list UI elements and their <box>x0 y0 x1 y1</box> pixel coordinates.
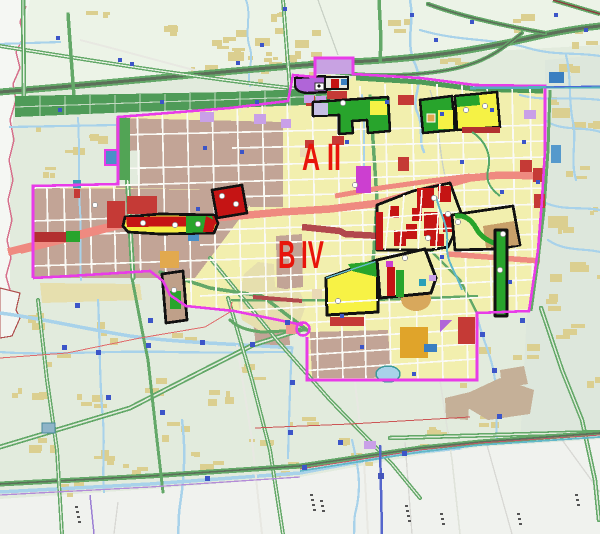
svg-text:A: A <box>302 136 320 178</box>
svg-text:IV: IV <box>301 233 324 276</box>
svg-text:B: B <box>278 233 295 276</box>
svg-text:II: II <box>327 136 341 178</box>
